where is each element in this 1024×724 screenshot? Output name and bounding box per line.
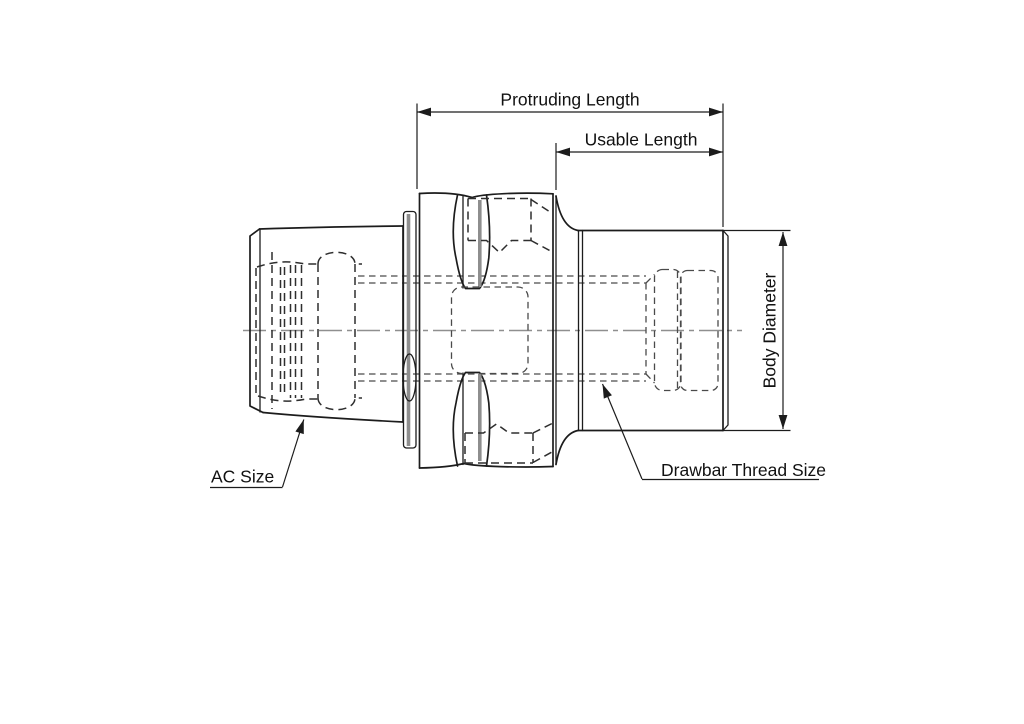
- callout-ac-size: AC Size: [210, 420, 304, 488]
- dimension-usable-length: Usable Length: [556, 130, 723, 191]
- body-diameter-label: Body Diameter: [760, 272, 780, 388]
- drawing-canvas: Protruding Length Usable Length Body Dia…: [0, 0, 1024, 724]
- technical-drawing: Protruding Length Usable Length Body Dia…: [0, 0, 1024, 724]
- taper-shank: [250, 226, 403, 422]
- usable-length-label: Usable Length: [585, 130, 698, 150]
- protruding-length-label: Protruding Length: [500, 90, 639, 110]
- dimension-body-diameter: Body Diameter: [723, 231, 791, 431]
- drawbar-thread-size-label: Drawbar Thread Size: [661, 460, 826, 480]
- ac-size-label: AC Size: [211, 467, 274, 487]
- callout-drawbar-thread-size: Drawbar Thread Size: [603, 384, 827, 480]
